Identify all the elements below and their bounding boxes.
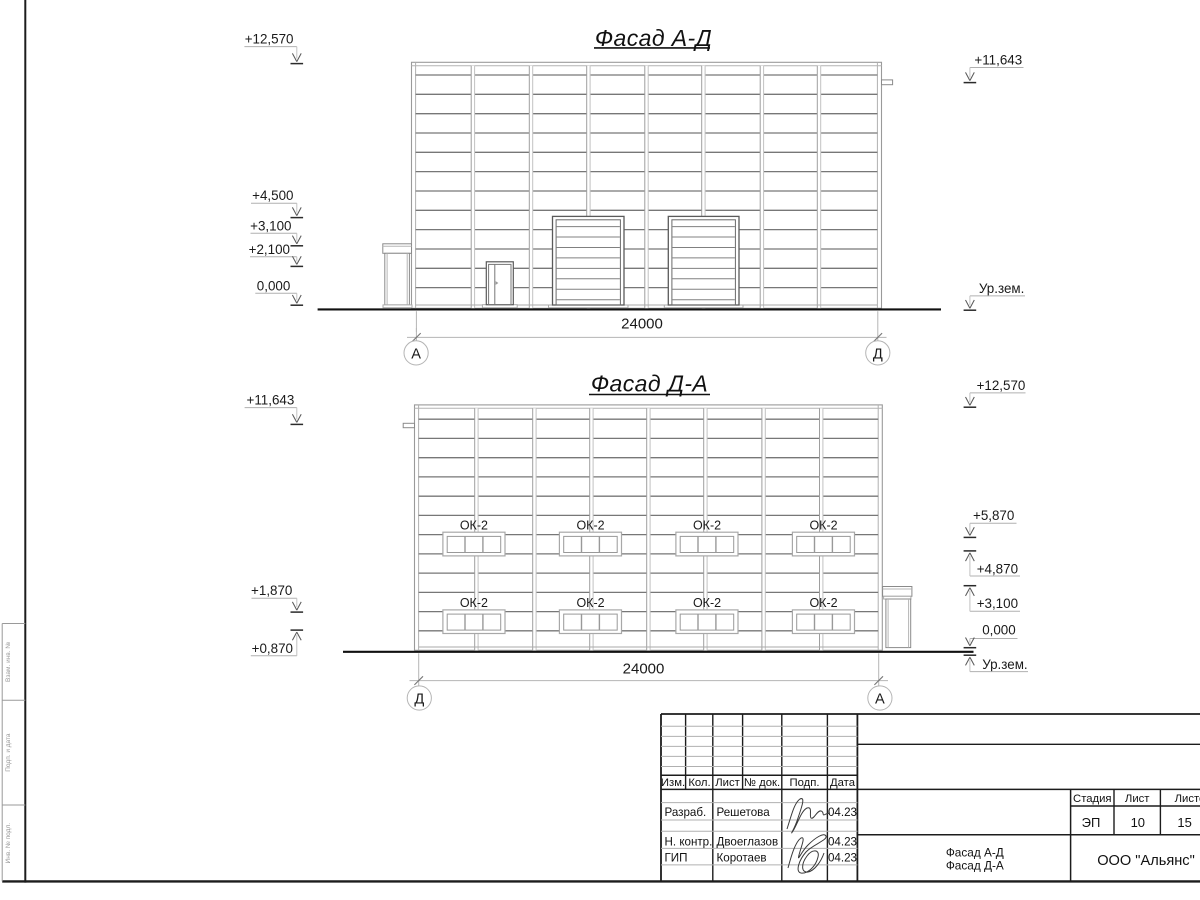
svg-text:ГИП: ГИП bbox=[665, 852, 688, 865]
svg-text:Взам. инв. №: Взам. инв. № bbox=[5, 642, 12, 682]
svg-text:+3,100: +3,100 bbox=[977, 596, 1018, 611]
svg-text:Ур.зем.: Ур.зем. bbox=[979, 281, 1024, 296]
svg-text:+12,570: +12,570 bbox=[245, 32, 294, 47]
svg-text:Изм.: Изм. bbox=[661, 777, 685, 789]
svg-text:04.23: 04.23 bbox=[828, 806, 857, 819]
svg-text:Фасад Д-А: Фасад Д-А bbox=[591, 370, 708, 396]
svg-text:+0,870: +0,870 bbox=[252, 641, 293, 656]
svg-text:+2,100: +2,100 bbox=[249, 242, 290, 257]
svg-text:0,000: 0,000 bbox=[982, 623, 1016, 638]
svg-text:24000: 24000 bbox=[621, 315, 663, 332]
svg-text:Решетова: Решетова bbox=[717, 806, 771, 819]
svg-text:Разраб.: Разраб. bbox=[665, 806, 707, 819]
svg-text:Стадия: Стадия bbox=[1073, 793, 1112, 805]
svg-text:10: 10 bbox=[1131, 815, 1145, 830]
svg-text:+4,500: +4,500 bbox=[252, 188, 293, 203]
svg-text:ОК-2: ОК-2 bbox=[693, 596, 721, 610]
svg-text:+3,100: +3,100 bbox=[250, 218, 291, 233]
svg-text:ОК-2: ОК-2 bbox=[460, 518, 488, 532]
svg-text:0,000: 0,000 bbox=[257, 278, 291, 293]
svg-text:+12,570: +12,570 bbox=[977, 378, 1026, 393]
svg-text:№ док.: № док. bbox=[744, 777, 780, 789]
svg-text:А: А bbox=[875, 691, 885, 707]
svg-text:Коротаев: Коротаев bbox=[717, 852, 767, 865]
svg-text:+1,870: +1,870 bbox=[251, 583, 292, 598]
svg-text:+11,643: +11,643 bbox=[247, 392, 295, 407]
svg-text:ОК-2: ОК-2 bbox=[809, 518, 837, 532]
svg-text:Двоеглазов: Двоеглазов bbox=[717, 836, 779, 849]
svg-text:24000: 24000 bbox=[623, 661, 665, 678]
svg-text:Ур.зем.: Ур.зем. bbox=[982, 657, 1027, 672]
svg-text:04.23: 04.23 bbox=[828, 836, 857, 849]
svg-text:Лист: Лист bbox=[1125, 793, 1150, 805]
svg-text:ОК-2: ОК-2 bbox=[809, 596, 837, 610]
svg-text:Фасад Д-А: Фасад Д-А bbox=[946, 858, 1004, 872]
svg-text:А: А bbox=[411, 346, 421, 362]
svg-text:15: 15 bbox=[1177, 815, 1191, 830]
svg-text:Д: Д bbox=[414, 691, 424, 707]
svg-text:ОК-2: ОК-2 bbox=[576, 518, 604, 532]
svg-text:+5,870: +5,870 bbox=[973, 508, 1014, 523]
svg-text:+4,870: +4,870 bbox=[977, 561, 1018, 576]
svg-text:+11,643: +11,643 bbox=[974, 53, 1022, 68]
svg-text:Подп. и дата: Подп. и дата bbox=[5, 733, 12, 772]
svg-text:ОК-2: ОК-2 bbox=[460, 596, 488, 610]
svg-text:Подп.: Подп. bbox=[789, 777, 819, 789]
svg-text:ОК-2: ОК-2 bbox=[693, 518, 721, 532]
svg-text:Кол.: Кол. bbox=[688, 777, 710, 789]
svg-text:ОК-2: ОК-2 bbox=[576, 596, 604, 610]
svg-text:04.23: 04.23 bbox=[828, 852, 857, 865]
svg-text:ЭП: ЭП bbox=[1082, 815, 1101, 830]
svg-text:Н. контр.: Н. контр. bbox=[665, 836, 713, 849]
svg-text:ООО "Альянс": ООО "Альянс" bbox=[1097, 853, 1195, 869]
svg-text:Инв. № подл.: Инв. № подл. bbox=[5, 823, 12, 864]
svg-text:Лист: Лист bbox=[715, 777, 740, 789]
svg-text:Дата: Дата bbox=[830, 777, 856, 789]
svg-text:Листов: Листов bbox=[1175, 793, 1200, 805]
svg-text:Д: Д bbox=[873, 346, 883, 362]
